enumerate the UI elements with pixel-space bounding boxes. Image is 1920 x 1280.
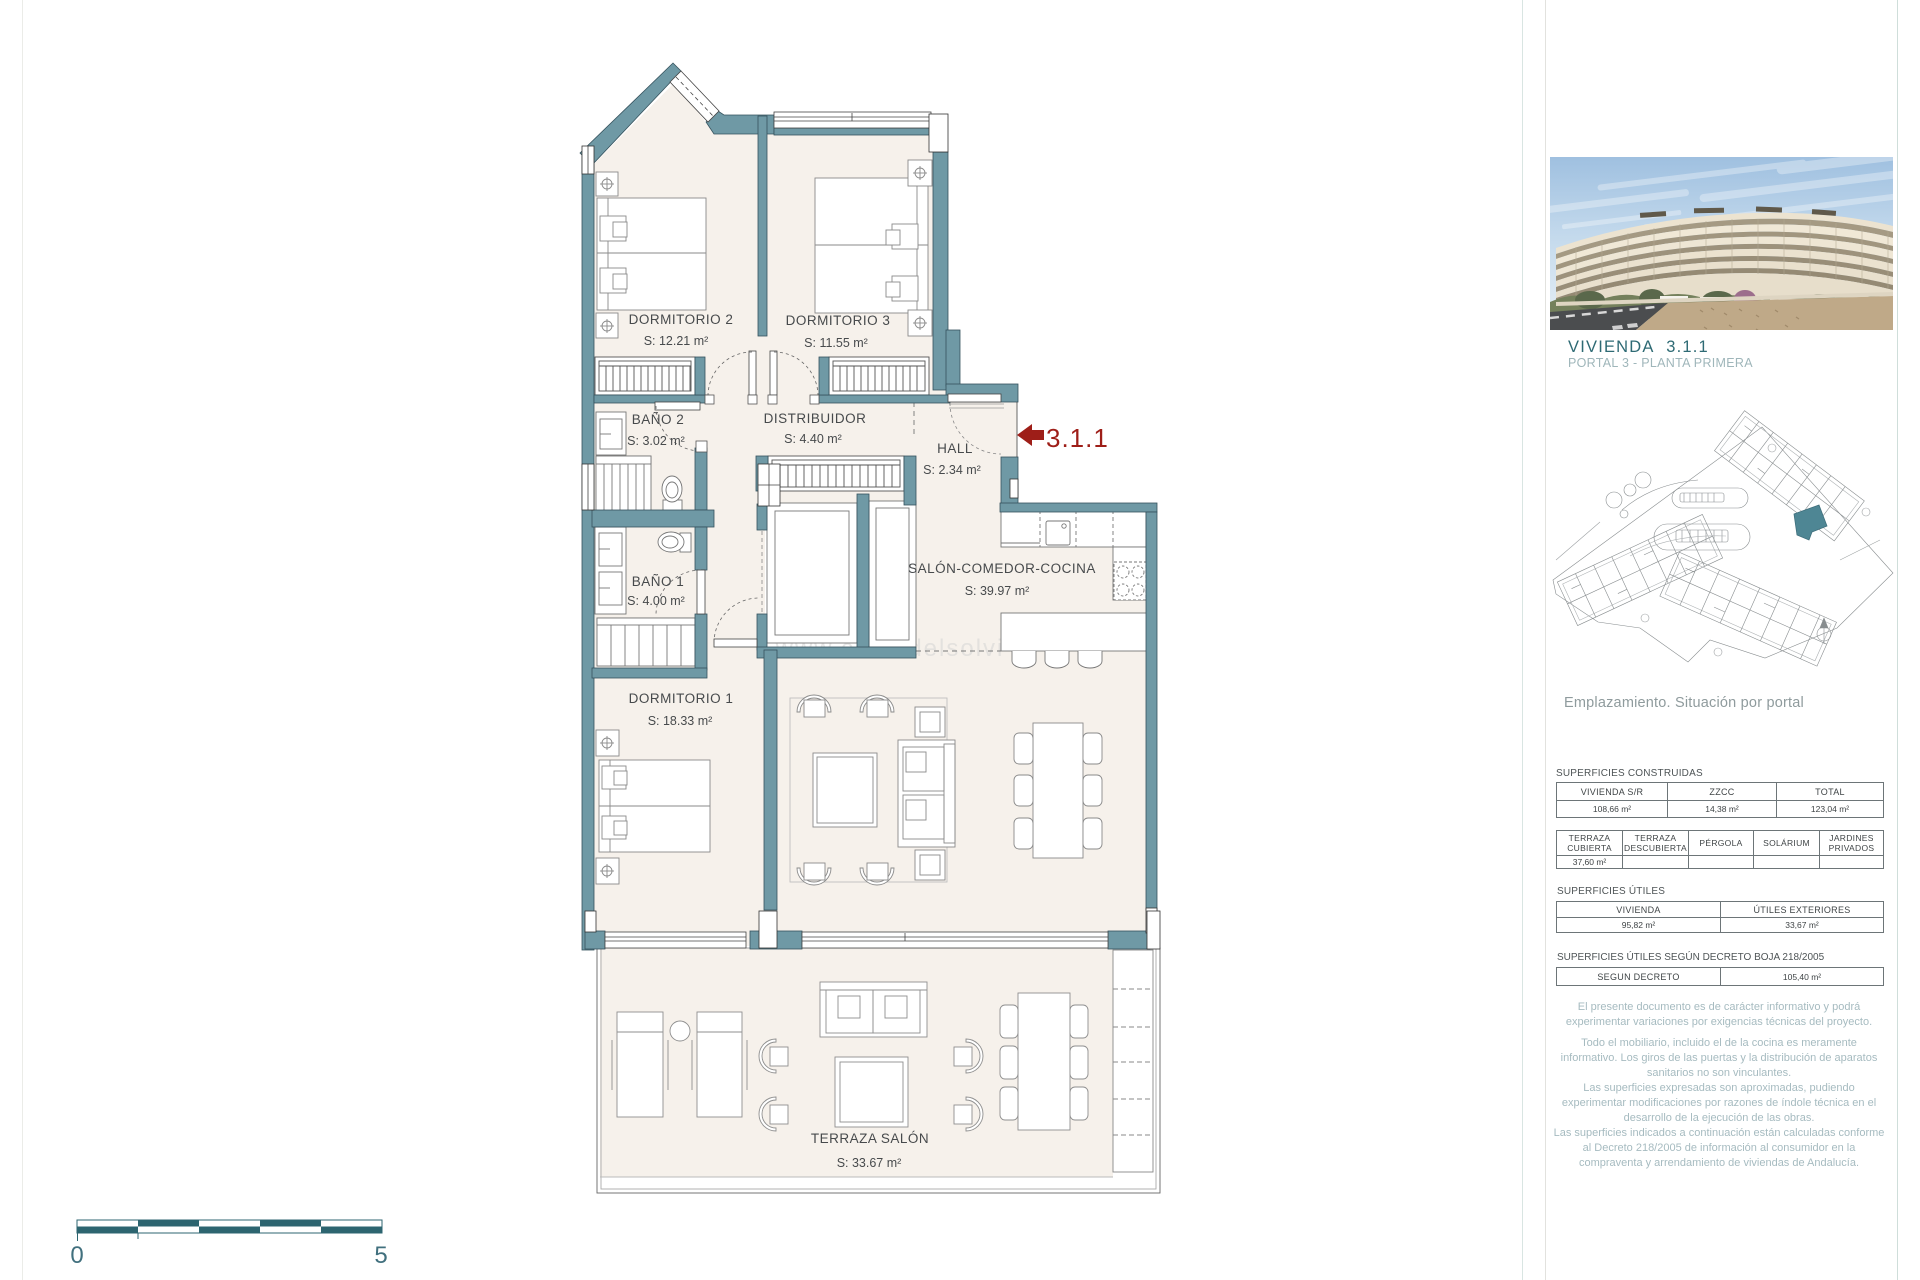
svg-text:S: 2.34 m²: S: 2.34 m² — [923, 463, 981, 477]
svg-text:S: 33.67 m²: S: 33.67 m² — [837, 1156, 902, 1170]
svg-text:DORMITORIO 3: DORMITORIO 3 — [786, 313, 891, 328]
svg-text:0: 0 — [70, 1242, 83, 1269]
svg-text:S: 3.02 m²: S: 3.02 m² — [627, 434, 685, 448]
svg-text:S: 39.97 m²: S: 39.97 m² — [965, 584, 1030, 598]
svg-text:S: 4.40 m²: S: 4.40 m² — [784, 432, 842, 446]
svg-text:DISTRIBUIDOR: DISTRIBUIDOR — [764, 411, 867, 426]
svg-text:SALÓN-COMEDOR-COCINA: SALÓN-COMEDOR-COCINA — [908, 561, 1096, 576]
svg-text:HALL: HALL — [937, 441, 973, 456]
svg-text:BAÑO 2: BAÑO 2 — [632, 412, 685, 427]
svg-text:S: 11.55 m²: S: 11.55 m² — [804, 336, 868, 350]
svg-text:DORMITORIO 1: DORMITORIO 1 — [629, 691, 734, 706]
svg-text:TERRAZA SALÓN: TERRAZA SALÓN — [811, 1131, 929, 1146]
svg-text:3.1.1: 3.1.1 — [1046, 423, 1109, 453]
svg-text:BAÑO 1: BAÑO 1 — [632, 574, 685, 589]
svg-text:S: 4.00 m²: S: 4.00 m² — [627, 594, 685, 608]
svg-text:S: 12.21 m²: S: 12.21 m² — [644, 334, 709, 348]
svg-text:DORMITORIO 2: DORMITORIO 2 — [629, 312, 734, 327]
svg-text:S: 18.33 m²: S: 18.33 m² — [648, 714, 713, 728]
svg-text:5: 5 — [374, 1242, 387, 1269]
